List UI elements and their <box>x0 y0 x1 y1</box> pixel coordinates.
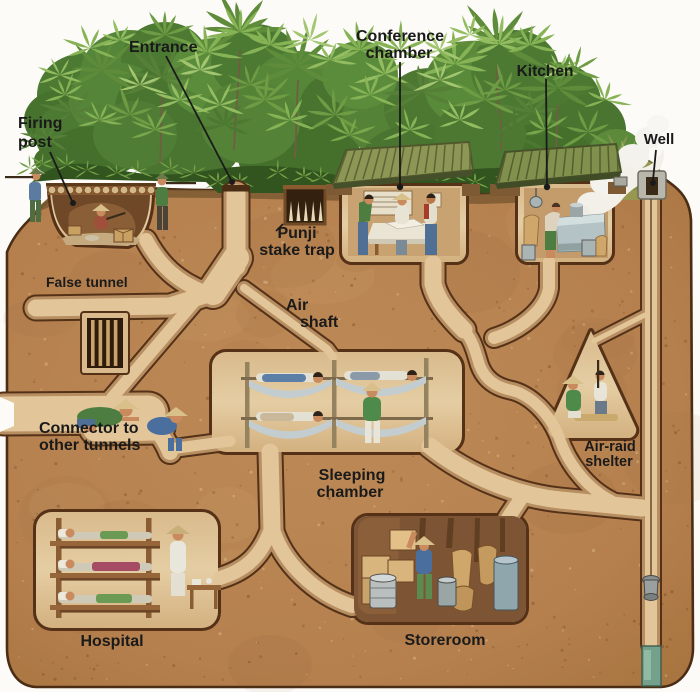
svg-text:Punji: Punji <box>277 225 316 242</box>
svg-text:Well: Well <box>644 131 675 148</box>
svg-text:other tunnels: other tunnels <box>39 437 140 454</box>
svg-text:chamber: chamber <box>366 45 433 62</box>
svg-text:shaft: shaft <box>300 314 339 331</box>
svg-text:Kitchen: Kitchen <box>517 63 574 80</box>
svg-text:chamber: chamber <box>317 484 384 501</box>
svg-text:Air-raid: Air-raid <box>584 439 636 455</box>
svg-text:stake trap: stake trap <box>259 242 335 259</box>
svg-text:Entrance: Entrance <box>129 39 198 56</box>
svg-text:Connector to: Connector to <box>39 420 139 437</box>
svg-text:Hospital: Hospital <box>80 633 143 650</box>
svg-text:Storeroom: Storeroom <box>405 632 486 649</box>
svg-text:Sleeping: Sleeping <box>319 467 386 484</box>
svg-text:Firing: Firing <box>18 115 62 132</box>
svg-text:shelter: shelter <box>585 454 633 470</box>
svg-text:False tunnel: False tunnel <box>46 274 128 290</box>
svg-text:Conference: Conference <box>356 28 444 45</box>
svg-text:Air: Air <box>286 297 308 314</box>
svg-text:post: post <box>18 134 52 151</box>
